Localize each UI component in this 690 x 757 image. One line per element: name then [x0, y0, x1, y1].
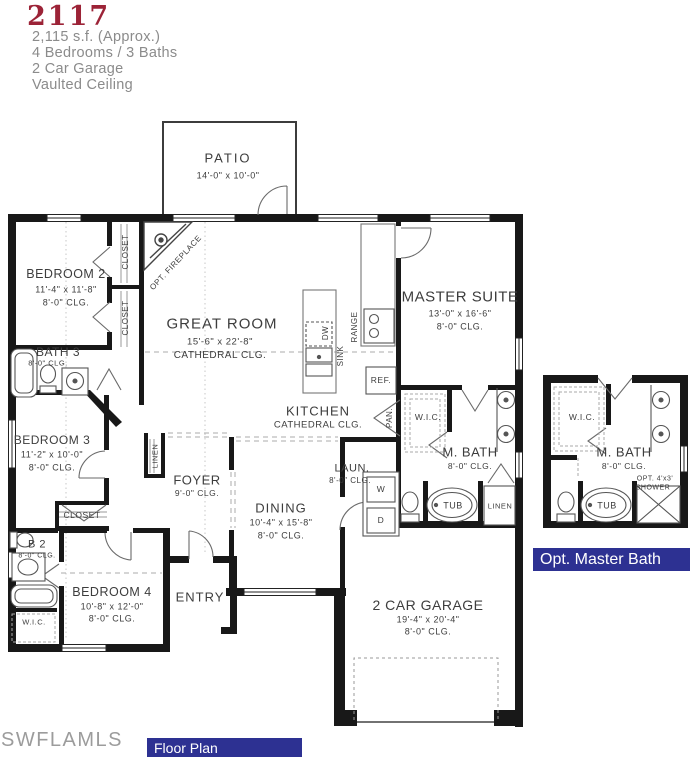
foyer-clg: 9'-0" CLG. [175, 489, 219, 498]
master-tub-label: TUB [443, 502, 463, 511]
garage-clg: 8'-0" CLG. [405, 628, 451, 637]
sink-label: SINK [337, 346, 345, 367]
hall-linen-label: LINEN [151, 444, 159, 469]
great-room-dims: 15'-6" x 22'-8" [187, 337, 253, 347]
garage-door [354, 658, 498, 722]
opt-tub-label: TUB [597, 502, 617, 511]
kitchen-label: KITCHEN [286, 405, 350, 418]
laundry-clg: 8'-0" CLG. [329, 477, 371, 485]
opt-wic-label: W.I.C. [569, 413, 595, 422]
entry-label: ENTRY [176, 591, 225, 604]
opt-master-bath-label: M. BATH [596, 446, 651, 459]
bedroom3-clg: 8'-0" CLG. [29, 464, 75, 473]
great-room-label: GREAT ROOM [166, 317, 277, 332]
ref-label: REF. [371, 376, 391, 385]
dryer-label: D [378, 516, 385, 525]
bedroom3-closet-label: CLOSET [63, 511, 100, 520]
bath3-label: BATH 3 [36, 346, 80, 358]
washer-label: W [377, 485, 386, 494]
plan-beds-baths: 4 Bedrooms / 3 Baths [32, 45, 177, 61]
dining-dims: 10'-4" x 15'-8" [250, 519, 313, 528]
bedroom4-dims: 10'-8" x 12'-0" [81, 603, 144, 612]
opt-bath-door-gap [598, 374, 632, 384]
master-wic-label: W.I.C. [415, 413, 441, 422]
opt-master-bath-banner: Opt. Master Bath [533, 548, 690, 571]
master-linen-label: LINEN [488, 502, 513, 510]
watermark: SWFLAMLS [1, 729, 123, 752]
opt-master-bath-clg: 8'-0" CLG. [602, 462, 646, 471]
kitchen-clg: CATHEDRAL CLG. [274, 420, 362, 430]
range-label: RANGE [351, 312, 359, 343]
bedroom3-label: BEDROOM 3 [14, 434, 91, 446]
closet-label-2: CLOSET [122, 300, 130, 335]
pantry-label: PAN. [386, 408, 394, 428]
plan-number: 2117 [27, 1, 110, 32]
master-bath-clg: 8'-0" CLG. [448, 462, 492, 471]
master-suite-label: MASTER SUITE [402, 290, 519, 305]
dining-clg: 8'-0" CLG. [258, 532, 304, 541]
floorplan-drawing [0, 0, 690, 757]
plan-garage: 2 Car Garage [32, 61, 123, 77]
patio-walls [163, 122, 296, 216]
foyer-label: FOYER [173, 474, 220, 487]
bedroom2-clg: 8'-0" CLG. [43, 299, 89, 308]
opt-shower-label-1: OPT. 4'x3' [637, 476, 673, 483]
bedroom2-dims: 11'-4" x 11'-8" [35, 286, 97, 295]
closet-label-1: CLOSET [122, 234, 130, 269]
bedroom4-wic-label: W.I.C. [22, 618, 45, 626]
garage-dims: 19'-4" x 20'-4" [397, 616, 460, 625]
plan-area: 2,115 s.f. (Approx.) [32, 29, 160, 45]
master-suite-dims: 13'-0" x 16'-6" [429, 310, 492, 319]
bedroom3-dims: 11'-2" x 10'-0" [21, 451, 83, 460]
floor-plan-caption-text: Floor Plan [154, 740, 218, 756]
opt-master-bath-banner-text: Opt. Master Bath [540, 551, 661, 569]
bedroom4-clg: 8'-0" CLG. [89, 615, 135, 624]
floor-plan-page: 2117 2,115 s.f. (Approx.) 4 Bedrooms / 3… [0, 0, 690, 757]
great-room-clg: CATHEDRAL CLG. [174, 351, 267, 361]
opt-shower-label-2: SHOWER [636, 485, 671, 492]
laundry-label: LAUN. [335, 464, 370, 475]
floor-plan-caption: Floor Plan [147, 738, 302, 757]
bath3-clg: 8'-0" CLG. [28, 359, 68, 367]
bedroom2-label: BEDROOM 2 [26, 268, 106, 281]
patio-label: PATIO [204, 152, 251, 165]
bath2-clg: 8'-0" CLG. [18, 553, 55, 560]
garage-label: 2 CAR GARAGE [372, 598, 483, 612]
bath2-label: B 2 [28, 540, 46, 551]
patio-dims: 14'-0" x 10'-0" [197, 172, 260, 181]
dw-label: DW [322, 326, 330, 340]
master-bath-label: M. BATH [442, 446, 497, 459]
plan-ceiling: Vaulted Ceiling [32, 77, 133, 93]
master-suite-clg: 8'-0" CLG. [437, 323, 483, 332]
dining-label: DINING [255, 502, 307, 515]
bedroom4-label: BEDROOM 4 [72, 586, 152, 599]
